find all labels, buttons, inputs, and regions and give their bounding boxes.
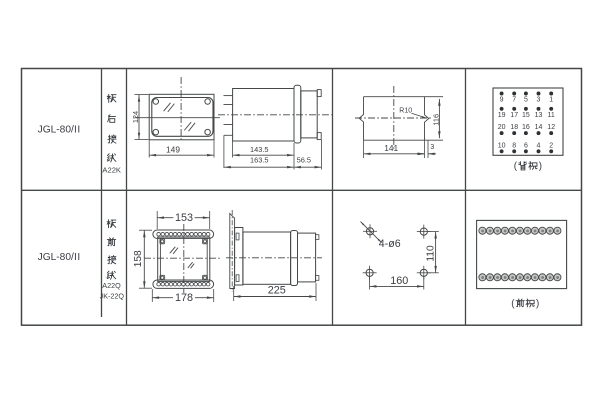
svg-text:): ): [539, 161, 542, 172]
svg-text:124: 124: [131, 111, 140, 123]
svg-text:225: 225: [268, 284, 286, 296]
svg-text:153: 153: [175, 212, 193, 224]
svg-text:19: 19: [498, 112, 506, 119]
svg-text:110: 110: [425, 245, 436, 262]
svg-text:18: 18: [510, 124, 518, 131]
svg-text:12: 12: [547, 124, 555, 131]
svg-text:3: 3: [537, 97, 541, 104]
svg-text:158: 158: [133, 250, 144, 267]
svg-text:2: 2: [549, 142, 553, 149]
svg-text:JK-22Q: JK-22Q: [100, 291, 125, 300]
svg-text:116: 116: [431, 114, 440, 126]
svg-text:8: 8: [512, 142, 516, 149]
svg-text:6: 6: [524, 142, 528, 149]
svg-text:II: II: [74, 125, 81, 136]
svg-text:149: 149: [166, 144, 180, 154]
svg-text:13: 13: [535, 112, 543, 119]
svg-text:A22K: A22K: [102, 166, 121, 175]
svg-text:3: 3: [430, 144, 434, 151]
svg-text:178: 178: [175, 292, 193, 304]
svg-text:17: 17: [510, 112, 518, 119]
svg-text:4: 4: [537, 142, 541, 149]
svg-text:JGL-80/: JGL-80/: [38, 125, 74, 136]
svg-text:5: 5: [524, 97, 528, 104]
svg-text:4-ø6: 4-ø6: [379, 238, 401, 250]
svg-text:15: 15: [522, 112, 530, 119]
svg-text:160: 160: [390, 275, 408, 287]
svg-text:1: 1: [549, 97, 553, 104]
svg-text:56.5: 56.5: [297, 155, 311, 164]
svg-text:14: 14: [535, 124, 543, 131]
svg-text:9: 9: [500, 97, 504, 104]
svg-text:A22Q: A22Q: [102, 281, 121, 290]
svg-text:11: 11: [548, 112, 555, 119]
svg-text:20: 20: [498, 124, 506, 131]
svg-text:141: 141: [384, 143, 398, 153]
svg-text:7: 7: [512, 97, 516, 104]
svg-text:): ): [536, 299, 539, 310]
svg-text:II: II: [74, 252, 81, 263]
svg-text:16: 16: [522, 124, 530, 131]
svg-text:JGL-80/: JGL-80/: [38, 252, 74, 263]
svg-text:R10: R10: [399, 107, 412, 114]
svg-text:10: 10: [498, 142, 506, 149]
svg-text:143.5: 143.5: [250, 145, 269, 154]
svg-text:163.5: 163.5: [250, 156, 269, 165]
